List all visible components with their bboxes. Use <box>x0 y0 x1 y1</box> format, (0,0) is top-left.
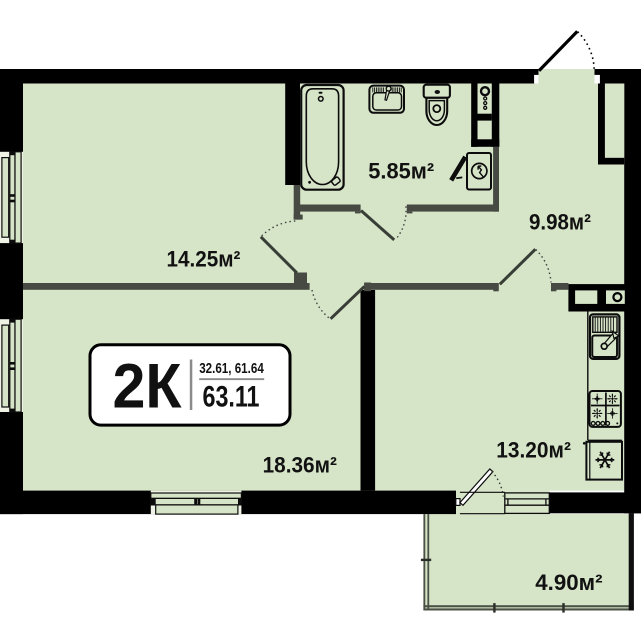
svg-text:13.20м²: 13.20м² <box>496 437 571 462</box>
svg-text:18.36м²: 18.36м² <box>263 453 337 478</box>
svg-text:63.11: 63.11 <box>203 381 260 414</box>
svg-text:9.98м²: 9.98м² <box>529 210 591 235</box>
svg-text:4.90м²: 4.90м² <box>535 570 602 595</box>
svg-text:14.25м²: 14.25м² <box>167 246 241 271</box>
svg-text:2К: 2К <box>113 351 183 421</box>
svg-text:32.61, 61.64: 32.61, 61.64 <box>199 361 264 377</box>
svg-text:5.85м²: 5.85м² <box>368 159 434 184</box>
